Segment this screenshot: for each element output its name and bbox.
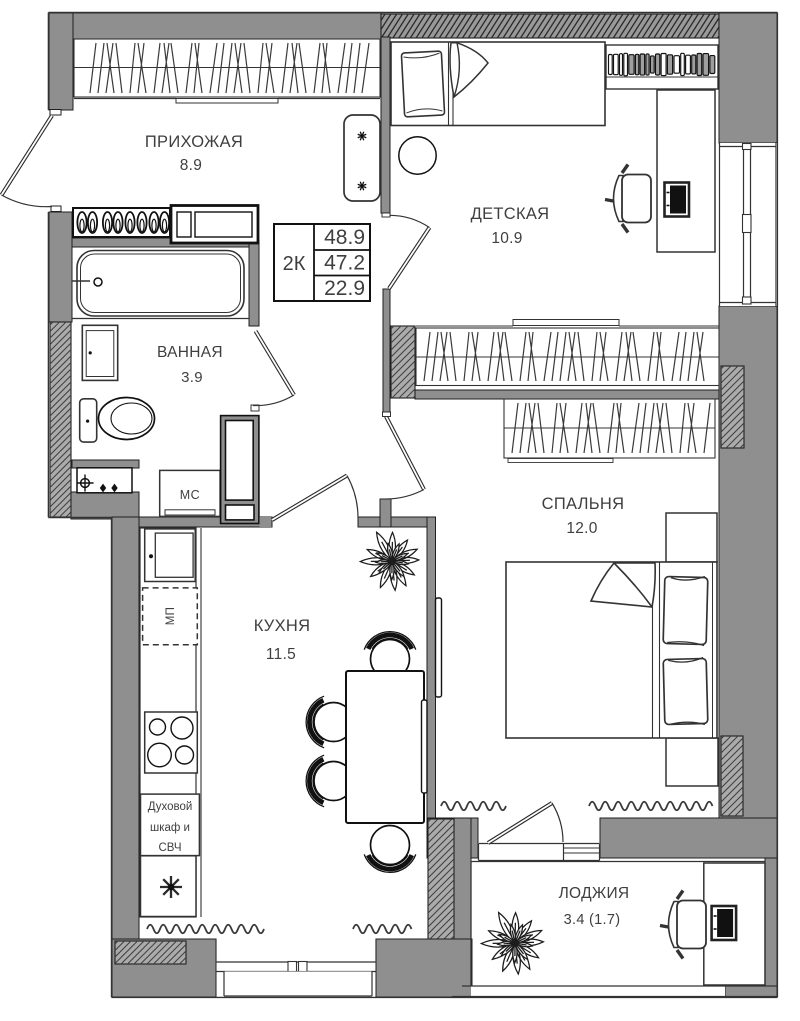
svg-text:3.4 (1.7): 3.4 (1.7) xyxy=(564,912,621,928)
svg-text:МС: МС xyxy=(180,488,200,502)
svg-text:10.9: 10.9 xyxy=(491,230,522,247)
svg-text:ЛОДЖИЯ: ЛОДЖИЯ xyxy=(559,885,630,902)
svg-text:8.9: 8.9 xyxy=(180,157,202,174)
svg-text:ДЕТСКАЯ: ДЕТСКАЯ xyxy=(471,205,550,223)
svg-text:Духовой: Духовой xyxy=(148,801,193,813)
svg-text:12.0: 12.0 xyxy=(566,520,597,537)
svg-text:МП: МП xyxy=(165,607,177,625)
svg-text:2К: 2К xyxy=(283,253,306,275)
svg-text:22.9: 22.9 xyxy=(324,277,365,300)
svg-text:11.5: 11.5 xyxy=(266,646,296,663)
svg-text:СВЧ: СВЧ xyxy=(158,842,181,854)
svg-text:47.2: 47.2 xyxy=(324,252,365,275)
svg-text:СПАЛЬНЯ: СПАЛЬНЯ xyxy=(542,495,625,513)
svg-text:ПРИХОЖАЯ: ПРИХОЖАЯ xyxy=(145,133,243,151)
svg-text:3.9: 3.9 xyxy=(181,369,203,386)
svg-text:КУХНЯ: КУХНЯ xyxy=(254,617,311,635)
svg-text:ВАННАЯ: ВАННАЯ xyxy=(157,344,223,361)
svg-text:шкаф и: шкаф и xyxy=(150,822,190,834)
svg-text:48.9: 48.9 xyxy=(324,226,365,249)
